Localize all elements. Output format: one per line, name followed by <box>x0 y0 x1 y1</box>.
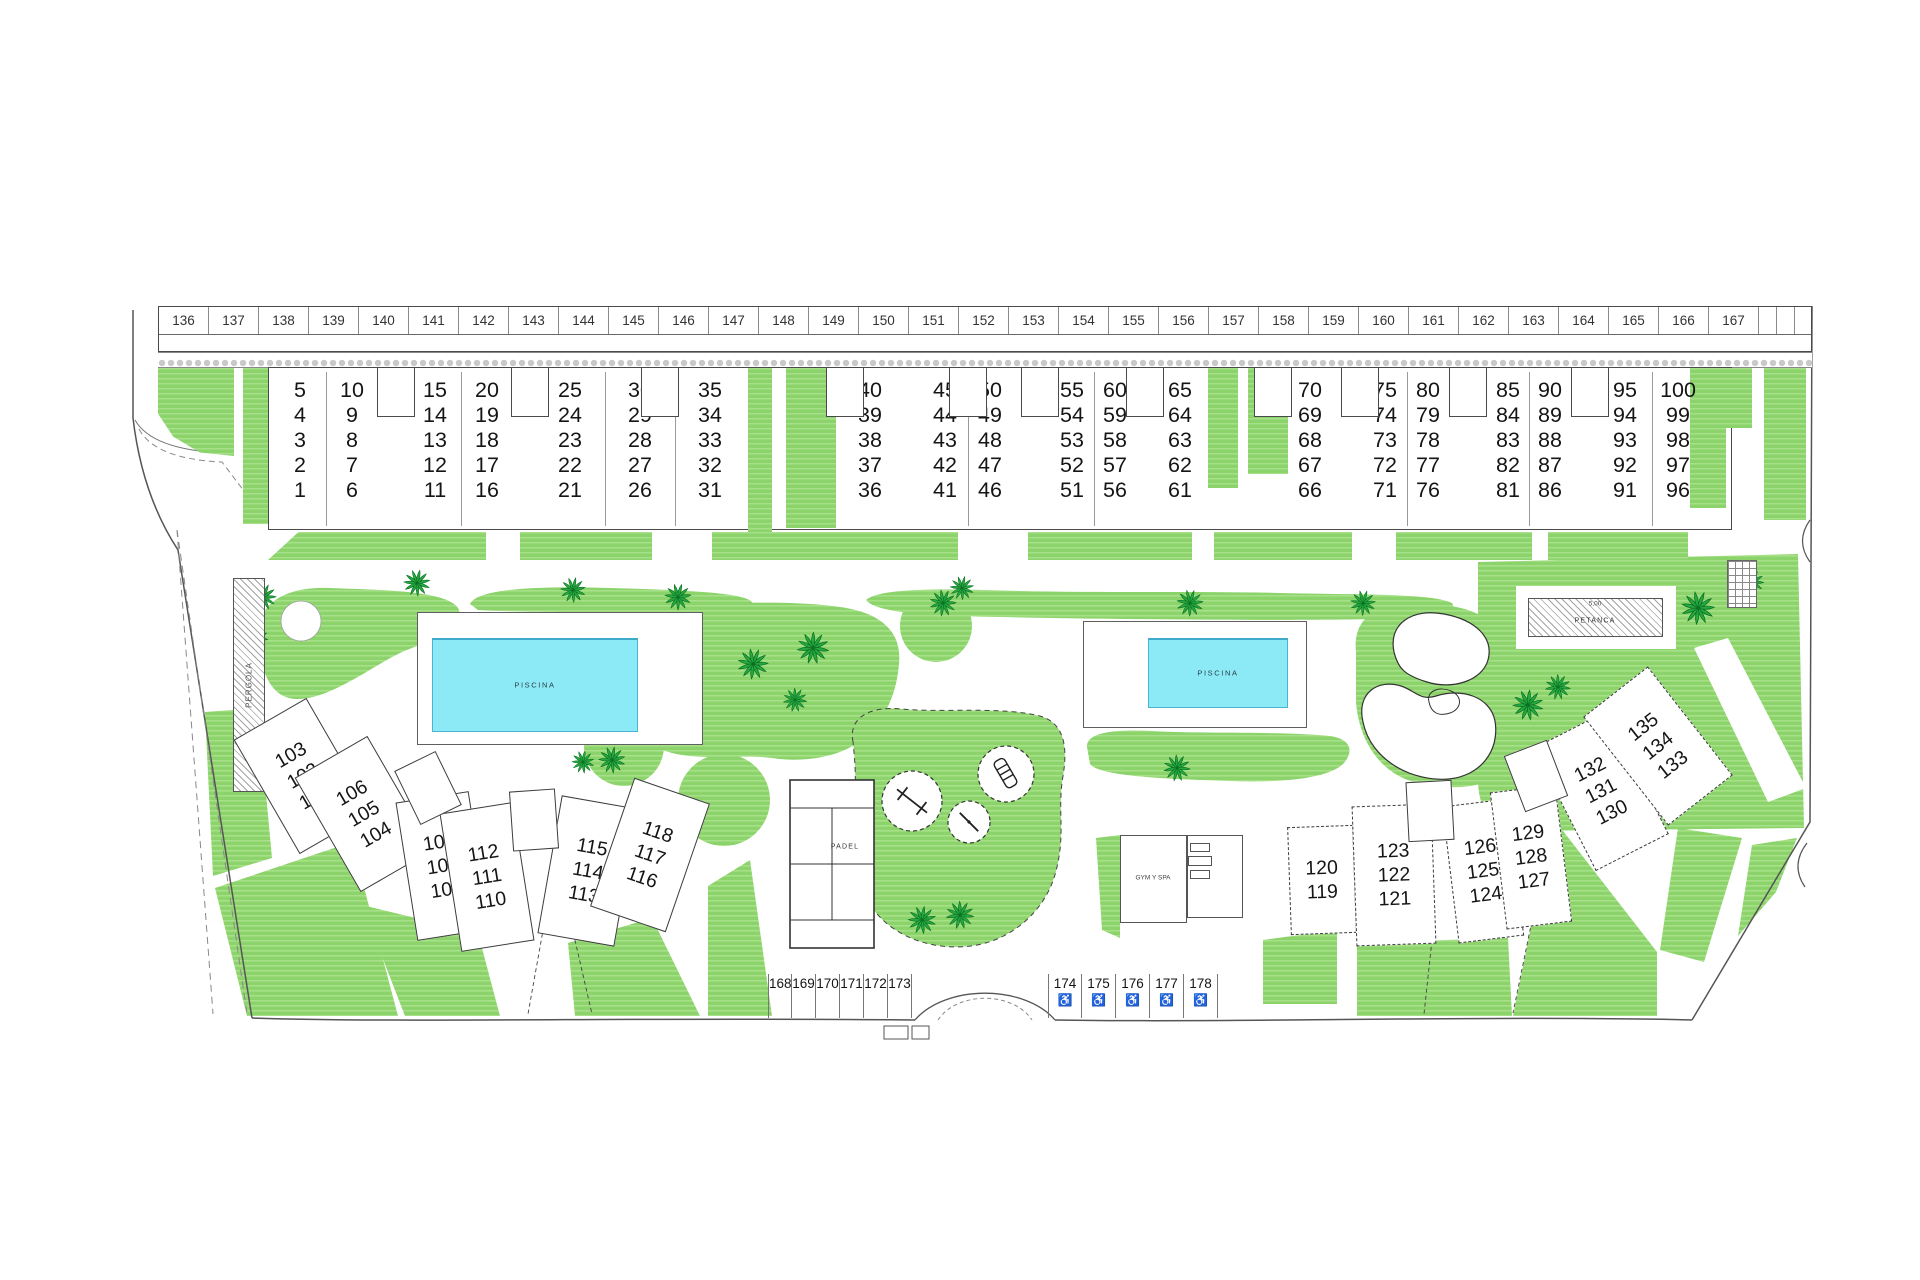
unit-number: 2 <box>274 453 326 478</box>
green-patch <box>243 368 268 524</box>
utility-box <box>884 1026 908 1039</box>
unit-divider <box>1094 372 1095 526</box>
green-patch <box>1764 368 1806 520</box>
parking-slot-number: 172 <box>864 976 887 991</box>
parking-slot: 163 <box>1509 307 1559 334</box>
unit-divider <box>326 372 327 526</box>
padel-label: PADEL <box>831 844 859 851</box>
parking-slot-number: 150 <box>859 313 908 328</box>
unit-number: 97 <box>1652 453 1704 478</box>
unit-number: 7 <box>326 453 378 478</box>
parking-slot-number: 140 <box>359 313 408 328</box>
parking-slot: 153 <box>1009 307 1059 334</box>
unit-number: 99 <box>1652 403 1704 428</box>
parking-slot: 140 <box>359 307 409 334</box>
unit-column: 8079787776 <box>1402 378 1454 503</box>
unit-number: 18 <box>461 428 513 453</box>
parking-slot: 143 <box>509 307 559 334</box>
parking-slot: 146 <box>659 307 709 334</box>
green-strip <box>1396 532 1532 560</box>
pergola-label: PERGOLA <box>245 662 254 708</box>
wheelchair-icon: ♿ <box>1082 993 1115 1007</box>
green-strip <box>1548 532 1688 560</box>
parking-slot-number: 139 <box>309 313 358 328</box>
pool-label: PISCINA <box>1197 669 1238 678</box>
unit-divider <box>1407 372 1408 526</box>
parking-slot-number: 138 <box>259 313 308 328</box>
stair-box <box>826 367 864 417</box>
unit-number: 1 <box>274 478 326 503</box>
wheelchair-icon: ♿ <box>1116 993 1149 1007</box>
parking-slot-number: 151 <box>909 313 958 328</box>
parking-slot-narrow <box>1759 307 1777 334</box>
accessible-parking-slot: 176♿ <box>1116 974 1150 1018</box>
parking-slot-number: 145 <box>609 313 658 328</box>
accessible-parking-slot: 175♿ <box>1082 974 1116 1018</box>
stair-box <box>1449 367 1487 417</box>
bottom-parking-accessible: 174♿175♿176♿177♿178♿ <box>1048 974 1218 1018</box>
unit-number: 12 <box>409 453 461 478</box>
gym-equipment <box>1188 856 1212 866</box>
unit-number: 67 <box>1284 453 1336 478</box>
building-block: 120119 <box>1287 825 1357 935</box>
unit-column: 1514131211 <box>409 378 461 503</box>
gym-equipment <box>1190 870 1210 879</box>
parking-slot-number: 137 <box>209 313 258 328</box>
stair-box <box>511 367 549 417</box>
unit-divider <box>461 372 462 526</box>
unit-column: 3534333231 <box>684 378 736 503</box>
unit-number: 89 <box>1524 403 1576 428</box>
parking-slot: 151 <box>909 307 959 334</box>
petanca-label: PETANCA <box>1575 618 1616 625</box>
green-strip <box>1028 532 1192 560</box>
unit-number: 17 <box>461 453 513 478</box>
unit-number: 91 <box>1599 478 1651 503</box>
stair-box <box>1126 367 1164 417</box>
unit-number: 119 <box>1306 879 1339 904</box>
unit-number: 79 <box>1402 403 1454 428</box>
parking-slot: 145 <box>609 307 659 334</box>
stair-box <box>1021 367 1059 417</box>
green-separator <box>1208 368 1238 488</box>
unit-number: 5 <box>274 378 326 403</box>
unit-number: 23 <box>544 428 596 453</box>
unit-number: 15 <box>409 378 461 403</box>
unit-number: 10 <box>326 378 378 403</box>
unit-column: 2019181716 <box>461 378 513 503</box>
unit-number: 37 <box>844 453 896 478</box>
parking-slot-number: 176 <box>1116 976 1149 991</box>
unit-number: 22 <box>544 453 596 478</box>
unit-number: 9 <box>326 403 378 428</box>
parking-slot-number: 170 <box>816 976 839 991</box>
parking-slot: 164 <box>1559 307 1609 334</box>
unit-number: 127 <box>1516 867 1551 895</box>
accessible-parking-slot: 174♿ <box>1048 974 1082 1018</box>
unit-number: 16 <box>461 478 513 503</box>
unit-divider <box>1652 372 1653 526</box>
unit-number: 76 <box>1402 478 1454 503</box>
unit-column: 2524232221 <box>544 378 596 503</box>
parking-slot-number: 160 <box>1359 313 1408 328</box>
unit-number: 11 <box>409 478 461 503</box>
unit-number: 68 <box>1284 428 1336 453</box>
unit-number: 28 <box>614 428 666 453</box>
stair-box <box>1254 367 1292 417</box>
stair-box <box>1341 367 1379 417</box>
unit-number: 87 <box>1524 453 1576 478</box>
parking-slot: 173 <box>888 974 912 1018</box>
unit-number: 78 <box>1402 428 1454 453</box>
road-dashed-line <box>177 530 213 1014</box>
parking-slot-number: 146 <box>659 313 708 328</box>
building-block-numbers: 129128127 <box>1510 819 1551 894</box>
building-block-numbers: 135134133 <box>1623 708 1693 785</box>
gym-equipment <box>1190 843 1210 852</box>
parking-slot: 155 <box>1109 307 1159 334</box>
stair-box <box>1571 367 1609 417</box>
unit-number: 86 <box>1524 478 1576 503</box>
stair-box <box>1405 780 1454 842</box>
unit-number: 26 <box>614 478 666 503</box>
parking-slot: 158 <box>1259 307 1309 334</box>
unit-number: 46 <box>964 478 1016 503</box>
parking-slot-number: 168 <box>769 976 791 991</box>
parking-slot: 169 <box>792 974 816 1018</box>
parking-slot: 154 <box>1059 307 1109 334</box>
top-parking-strip: 1361371381391401411421431441451461471481… <box>158 306 1812 352</box>
parking-slot-number: 162 <box>1459 313 1508 328</box>
unit-number: 3 <box>274 428 326 453</box>
parking-slot: 162 <box>1459 307 1509 334</box>
unit-number: 27 <box>614 453 666 478</box>
parking-slot-number: 136 <box>159 313 208 328</box>
gym-label: GYM Y SPA <box>1135 875 1170 882</box>
parking-slot-number: 164 <box>1559 313 1608 328</box>
green-strip <box>268 532 486 560</box>
parking-slot-number: 152 <box>959 313 1008 328</box>
parking-slot-number: 178 <box>1184 976 1217 991</box>
unit-number: 48 <box>964 428 1016 453</box>
unit-number: 80 <box>1402 378 1454 403</box>
building-block-numbers: 120119 <box>1305 855 1339 904</box>
parking-slot-number: 143 <box>509 313 558 328</box>
unit-number: 34 <box>684 403 736 428</box>
unit-number: 77 <box>1402 453 1454 478</box>
parking-slot: 166 <box>1659 307 1709 334</box>
parking-slot-number: 153 <box>1009 313 1058 328</box>
unit-number: 19 <box>461 403 513 428</box>
unit-number: 110 <box>474 886 508 915</box>
parking-slot: 137 <box>209 307 259 334</box>
wheelchair-icon: ♿ <box>1049 993 1081 1007</box>
gravel-strip <box>158 352 1812 368</box>
parking-slot: 138 <box>259 307 309 334</box>
unit-number: 122 <box>1377 862 1410 887</box>
unit-number: 24 <box>544 403 596 428</box>
unit-number: 47 <box>964 453 1016 478</box>
unit-column: 54321 <box>274 378 326 503</box>
parking-slot-number: 175 <box>1082 976 1115 991</box>
parking-slot-narrow <box>1795 307 1813 334</box>
stair-box <box>641 367 679 417</box>
unit-number: 21 <box>544 478 596 503</box>
parking-slot-number: 166 <box>1659 313 1708 328</box>
parking-slot: 136 <box>159 307 209 334</box>
unit-number: 58 <box>1089 428 1141 453</box>
green-strip <box>712 532 958 560</box>
unit-divider <box>605 372 606 526</box>
parking-slot: 165 <box>1609 307 1659 334</box>
parking-slot: 141 <box>409 307 459 334</box>
parking-slot: 160 <box>1359 307 1409 334</box>
bottom-parking-left: 168169170171172173 <box>768 974 912 1018</box>
unit-column: 109876 <box>326 378 378 503</box>
parking-slot: 142 <box>459 307 509 334</box>
accessible-parking-slot: 178♿ <box>1184 974 1218 1018</box>
unit-number: 32 <box>684 453 736 478</box>
unit-number: 66 <box>1284 478 1336 503</box>
unit-number: 31 <box>684 478 736 503</box>
unit-number: 20 <box>461 378 513 403</box>
green-strip <box>520 532 652 560</box>
parking-slot: 172 <box>864 974 888 1018</box>
parking-slot-number: 163 <box>1509 313 1558 328</box>
parking-slot: 148 <box>759 307 809 334</box>
building-block-numbers: 123122121 <box>1376 838 1411 911</box>
parking-slot-number: 161 <box>1409 313 1458 328</box>
stair-box <box>509 788 559 851</box>
gate-symbol <box>1803 520 1811 562</box>
parking-slot-number: 142 <box>459 313 508 328</box>
unit-number: 123 <box>1376 838 1409 863</box>
parking-slot-number: 156 <box>1159 313 1208 328</box>
unit-number: 93 <box>1599 428 1651 453</box>
unit-number: 124 <box>1468 881 1503 909</box>
parking-slot: 157 <box>1209 307 1259 334</box>
unit-number: 121 <box>1378 886 1411 911</box>
unit-number: 100 <box>1652 378 1704 403</box>
parking-slot-number: 149 <box>809 313 858 328</box>
unit-number: 96 <box>1652 478 1704 503</box>
tree-well <box>281 601 321 641</box>
unit-column: 10099989796 <box>1652 378 1704 503</box>
wheelchair-icon: ♿ <box>1184 993 1217 1007</box>
unit-number: 36 <box>844 478 896 503</box>
parking-slot-number: 157 <box>1209 313 1258 328</box>
parking-slot: 159 <box>1309 307 1359 334</box>
padel-court <box>790 780 874 948</box>
unit-number: 4 <box>274 403 326 428</box>
parking-slot-number: 165 <box>1609 313 1658 328</box>
unit-number: 92 <box>1599 453 1651 478</box>
unit-number: 25 <box>544 378 596 403</box>
unit-number: 33 <box>684 428 736 453</box>
parking-slot: 161 <box>1409 307 1459 334</box>
trellis <box>1727 560 1757 608</box>
wheelchair-icon: ♿ <box>1150 993 1183 1007</box>
parking-slot: 167 <box>1709 307 1759 334</box>
unit-number: 63 <box>1154 428 1206 453</box>
parking-slot-number: 154 <box>1059 313 1108 328</box>
stair-box <box>949 367 987 417</box>
parking-slot-number: 144 <box>559 313 608 328</box>
unit-number: 62 <box>1154 453 1206 478</box>
pool-label: PISCINA <box>514 681 555 690</box>
unit-number: 56 <box>1089 478 1141 503</box>
unit-number: 88 <box>1524 428 1576 453</box>
parking-slot: 150 <box>859 307 909 334</box>
unit-number: 90 <box>1524 378 1576 403</box>
parking-slot: 156 <box>1159 307 1209 334</box>
parking-slot: 171 <box>840 974 864 1018</box>
building-block-numbers: 112111110 <box>466 839 508 915</box>
parking-slot-number: 148 <box>759 313 808 328</box>
parking-slot-number: 173 <box>888 976 911 991</box>
unit-number: 38 <box>844 428 896 453</box>
green-patch <box>1726 368 1752 428</box>
parking-slot: 149 <box>809 307 859 334</box>
parking-slot-number: 159 <box>1309 313 1358 328</box>
parking-slot-number: 147 <box>709 313 758 328</box>
parking-slot-number: 177 <box>1150 976 1183 991</box>
unit-number: 8 <box>326 428 378 453</box>
parking-slot: 152 <box>959 307 1009 334</box>
parking-slot-narrow <box>1777 307 1795 334</box>
unit-number: 14 <box>409 403 461 428</box>
parking-slot-number: 167 <box>1709 313 1758 328</box>
green-separator <box>748 368 772 556</box>
unit-number: 61 <box>1154 478 1206 503</box>
petanca-dimension: 5,00 <box>1589 601 1602 608</box>
parking-slot-number: 155 <box>1109 313 1158 328</box>
unit-number: 98 <box>1652 428 1704 453</box>
parking-slot: 139 <box>309 307 359 334</box>
parking-slot-number: 174 <box>1049 976 1081 991</box>
unit-number: 57 <box>1089 453 1141 478</box>
utility-box <box>912 1026 929 1039</box>
parking-slot: 144 <box>559 307 609 334</box>
parking-slot: 170 <box>816 974 840 1018</box>
parking-slot-number: 158 <box>1259 313 1308 328</box>
building-block-numbers: 106105104 <box>332 775 396 854</box>
stair-box <box>377 367 415 417</box>
parking-slot-number: 141 <box>409 313 458 328</box>
accessible-parking-slot: 177♿ <box>1150 974 1184 1018</box>
parking-slot: 147 <box>709 307 759 334</box>
parking-number-row: 1361371381391401411421431441451461471481… <box>159 307 1811 335</box>
unit-number: 35 <box>684 378 736 403</box>
unit-number: 120 <box>1305 855 1338 880</box>
unit-number: 13 <box>409 428 461 453</box>
parking-slot: 168 <box>768 974 792 1018</box>
parking-slot-number: 169 <box>792 976 815 991</box>
site-plan-canvas: 1361371381391401411421431441451461471481… <box>0 0 1920 1280</box>
parking-slot-number: 171 <box>840 976 863 991</box>
unit-number: 6 <box>326 478 378 503</box>
unit-column: 9089888786 <box>1524 378 1576 503</box>
green-strip <box>1214 532 1352 560</box>
gate-symbol <box>1798 843 1807 887</box>
building-block-numbers: 118117116 <box>624 816 677 894</box>
unit-divider <box>1529 372 1530 526</box>
